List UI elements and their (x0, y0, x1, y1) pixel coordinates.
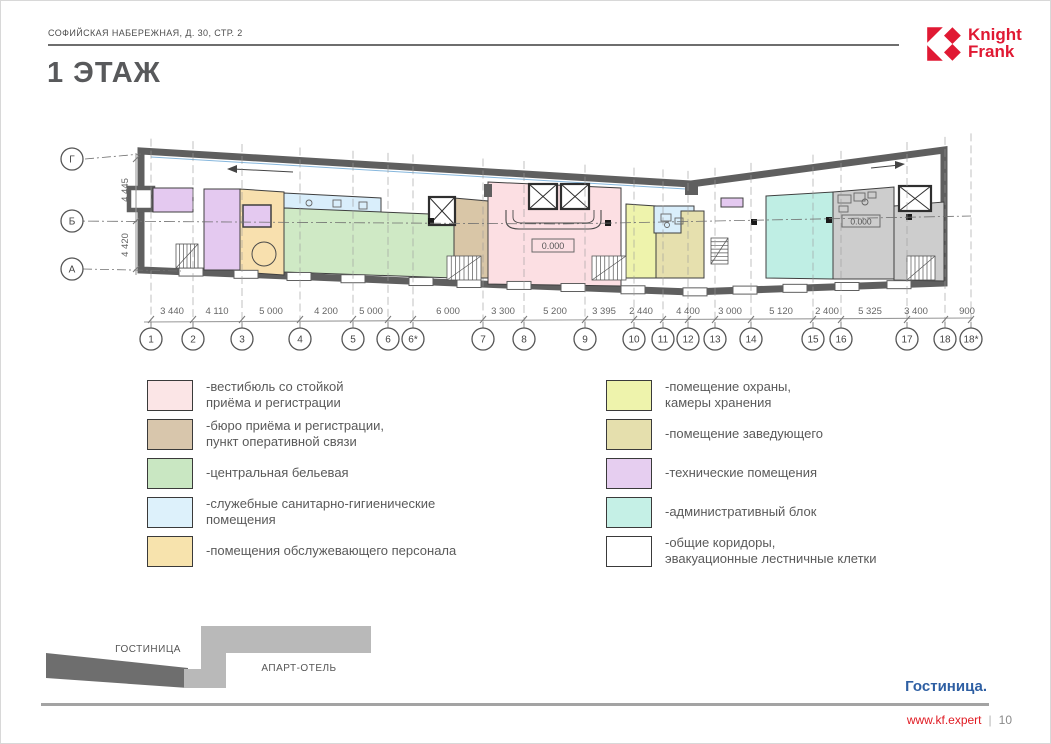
axis-bubble: А (61, 258, 83, 280)
axis-bubble: 18 (934, 328, 956, 350)
website-link[interactable]: www.kf.expert (907, 713, 982, 727)
legend-label: -общие коридоры,эвакуационные лестничные… (665, 535, 877, 567)
legend-swatch (147, 458, 193, 489)
window (234, 270, 258, 278)
centerline-G (85, 154, 141, 159)
svg-text:А: А (69, 265, 76, 276)
dimension-label: 3 400 (904, 306, 928, 317)
legend-right-column: -помещение охраны,камеры хранения-помеще… (606, 379, 877, 567)
legend-label: -технические помещения (665, 465, 817, 481)
axis-bubble: Г (61, 148, 83, 170)
svg-text:14: 14 (745, 335, 757, 346)
footer-separator: | (989, 713, 992, 727)
stair (711, 238, 728, 264)
axis-bubble: Б (61, 210, 83, 232)
dimension-label: 2 440 (629, 306, 653, 317)
dimension-label: 5 200 (543, 306, 567, 317)
window (887, 281, 911, 289)
brochure-page: СОФИЙСКАЯ НАБЕРЕЖНАЯ, Д. 30, СТР. 2 1 ЭТ… (0, 0, 1051, 744)
svg-text:13: 13 (709, 335, 721, 346)
legend-item: -центральная бельевая (147, 457, 456, 489)
legend-swatch (147, 536, 193, 567)
window (457, 280, 481, 288)
window (179, 268, 203, 276)
legend-left-column: -вестибюль со стойкойприёма и регистраци… (147, 379, 456, 567)
legend-swatch (606, 380, 652, 411)
window (621, 286, 645, 294)
dimension-label: 4 200 (314, 306, 338, 317)
legend-item: -общие коридоры,эвакуационные лестничные… (606, 535, 877, 567)
svg-text:8: 8 (521, 335, 527, 346)
elevator-icon (899, 186, 931, 211)
dimension-label: 3 440 (160, 306, 184, 317)
svg-text:11: 11 (658, 335, 669, 346)
legend-swatch (147, 419, 193, 450)
axis-bubble: 6 (377, 328, 399, 350)
dimension-line (144, 318, 973, 322)
axis-bubble: 9 (574, 328, 596, 350)
svg-text:12: 12 (682, 335, 694, 346)
room-staff (240, 189, 284, 275)
dimension-label: 2 400 (815, 306, 839, 317)
legend-swatch (606, 536, 652, 567)
room-technical-strip (721, 198, 743, 207)
svg-text:6*: 6* (408, 335, 418, 346)
legend-swatch (606, 419, 652, 450)
legend-label: -центральная бельевая (206, 465, 349, 481)
dimension-label: 5 325 (858, 306, 882, 317)
wall-stub (685, 183, 698, 195)
dimension-label: 4 400 (676, 306, 700, 317)
axis-bubble: 1 (140, 328, 162, 350)
window (409, 278, 433, 286)
legend-item: -помещение заведующего (606, 418, 877, 450)
dimension-label: 6 000 (436, 306, 460, 317)
legend-item: -помещение охраны,камеры хранения (606, 379, 877, 411)
breadcrumb: СОФИЙСКАЯ НАБЕРЕЖНАЯ, Д. 30, СТР. 2 (48, 28, 243, 38)
window (287, 273, 311, 281)
svg-text:2: 2 (190, 335, 196, 346)
legend-item: -помещения обслужевающего персонала (147, 535, 456, 567)
wall-stub (484, 184, 492, 197)
knight-frank-mark-icon (926, 26, 962, 62)
axis-bubble: 10 (623, 328, 645, 350)
window (683, 288, 707, 296)
svg-text:4: 4 (297, 335, 303, 346)
room-admin-block (766, 192, 833, 279)
axis-bubble: 4 (289, 328, 311, 350)
legend-swatch (606, 458, 652, 489)
page-title: 1 ЭТАЖ (47, 57, 161, 90)
svg-text:5: 5 (350, 335, 356, 346)
floor-plan: 0.000 0.000 3 4404 1105 0004 2005 0006 0… (41, 126, 991, 361)
axis-bubble: 11 (652, 328, 674, 350)
axis-bubble: 12 (677, 328, 699, 350)
room-technical-inner (243, 205, 271, 227)
axis-bubble: 16 (830, 328, 852, 350)
room-security (626, 204, 656, 278)
svg-text:10: 10 (628, 335, 640, 346)
legend-swatch (606, 497, 652, 528)
legend-label: -вестибюль со стойкойприёма и регистраци… (206, 379, 344, 411)
legend-label: -бюро приёма и регистрации,пункт операти… (206, 418, 384, 450)
legend-item: -служебные санитарно-гигиеническиепомеще… (147, 496, 456, 528)
svg-text:1: 1 (148, 335, 154, 346)
keyplan-apart-shape (184, 626, 371, 688)
legend-swatch (147, 380, 193, 411)
svg-text:9: 9 (582, 335, 588, 346)
knight-frank-logo: Knight Frank (926, 26, 1022, 62)
legend-label: -помещение заведующего (665, 426, 823, 442)
dimension-label: 5 000 (359, 306, 383, 317)
room-technical-small (153, 188, 193, 212)
section-note: Гостиница. (905, 678, 987, 695)
dimension-label: 4 110 (205, 306, 228, 317)
svg-text:Г: Г (69, 155, 75, 166)
row-dimension-label: 4 445 (120, 178, 131, 202)
window (507, 281, 531, 289)
legend-swatch (147, 497, 193, 528)
svg-text:3: 3 (239, 335, 245, 346)
legend-item: -административный блок (606, 496, 877, 528)
axis-bubble: 14 (740, 328, 762, 350)
footer-rule (41, 703, 989, 706)
legend-label: -административный блок (665, 504, 816, 520)
svg-text:Б: Б (69, 217, 76, 228)
keyplan-hotel-label: ГОСТИНИЦА (115, 644, 181, 655)
svg-text:18*: 18* (963, 335, 978, 346)
legend-label: -помещения обслужевающего персонала (206, 543, 456, 559)
header-rule (48, 44, 899, 46)
window (733, 286, 757, 294)
dimension-label: 900 (959, 306, 975, 317)
axis-bubble: 18* (960, 328, 982, 350)
dimension-label: 5 120 (769, 306, 793, 317)
logo-wordmark: Knight Frank (968, 26, 1022, 60)
dimension-label: 3 300 (491, 306, 515, 317)
axis-bubble: 3 (231, 328, 253, 350)
row-dimension-label: 4 420 (120, 233, 131, 257)
elevator-icon (529, 184, 557, 209)
room-technical-large (204, 189, 240, 270)
legend-item: -вестибюль со стойкойприёма и регистраци… (147, 379, 456, 411)
level-mark: 0.000 (542, 241, 565, 251)
svg-text:15: 15 (807, 335, 819, 346)
svg-text:7: 7 (480, 335, 486, 346)
svg-text:18: 18 (939, 335, 951, 346)
stair (907, 256, 935, 280)
keyplan-hotel-shape (46, 653, 188, 688)
axis-bubble: 6* (402, 328, 424, 350)
svg-text:17: 17 (901, 335, 913, 346)
stair (592, 256, 626, 280)
footer: www.kf.expert|10 (907, 713, 1012, 727)
axis-bubble: 13 (704, 328, 726, 350)
axis-bubble: 15 (802, 328, 824, 350)
page-number: 10 (999, 713, 1012, 727)
axis-bubble: 5 (342, 328, 364, 350)
dimension-label: 5 000 (259, 306, 283, 317)
svg-text:6: 6 (385, 335, 391, 346)
axis-bubble: 2 (182, 328, 204, 350)
window (561, 284, 585, 292)
legend-label: -помещение охраны,камеры хранения (665, 379, 791, 411)
entrance-alcove (129, 188, 153, 210)
dimension-label: 3 395 (592, 306, 616, 317)
svg-text:16: 16 (835, 335, 847, 346)
column-marker (826, 217, 832, 223)
key-plan: ГОСТИНИЦА АПАРТ-ОТЕЛЬ (41, 613, 391, 703)
legend-item: -бюро приёма и регистрации,пункт операти… (147, 418, 456, 450)
axis-bubble: 17 (896, 328, 918, 350)
axis-bubble: 7 (472, 328, 494, 350)
window (783, 284, 807, 292)
dimension-label: 3 000 (718, 306, 742, 317)
legend-item: -технические помещения (606, 457, 877, 489)
keyplan-apart-label: АПАРТ-ОТЕЛЬ (261, 663, 336, 674)
stair (176, 244, 198, 268)
axis-bubble: 8 (513, 328, 535, 350)
window (835, 282, 859, 290)
legend-label: -служебные санитарно-гигиеническиепомеще… (206, 496, 435, 528)
stair (447, 256, 481, 280)
